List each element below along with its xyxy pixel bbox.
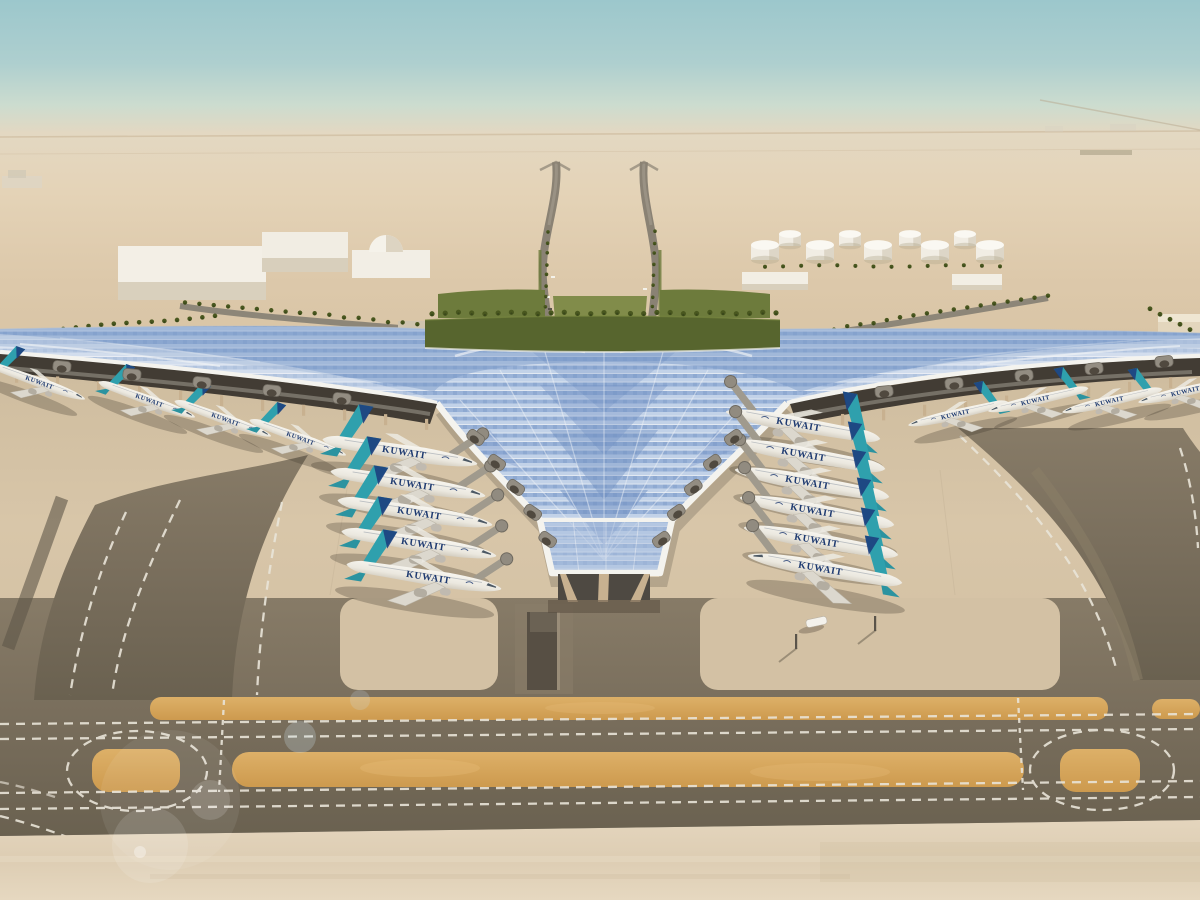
gate-canopy [332,392,351,405]
forecourt-hedge [425,316,780,352]
gate-canopy [945,377,964,390]
gate-canopy [262,384,281,397]
gate-canopy [192,376,211,389]
apex-columns [548,574,660,613]
gate-canopy [52,360,71,373]
gate-canopy [1155,355,1174,368]
distant-trees [1080,150,1132,155]
gate-canopy [1015,369,1034,382]
gate-canopy [122,368,141,381]
service-road-trench [515,604,573,694]
airport-aerial-rendering: Aerial rendering of Kuwait International… [0,0,1200,900]
gate-canopy [875,385,894,398]
gate-canopy [1085,362,1104,375]
apex-glass-panel [540,520,672,573]
